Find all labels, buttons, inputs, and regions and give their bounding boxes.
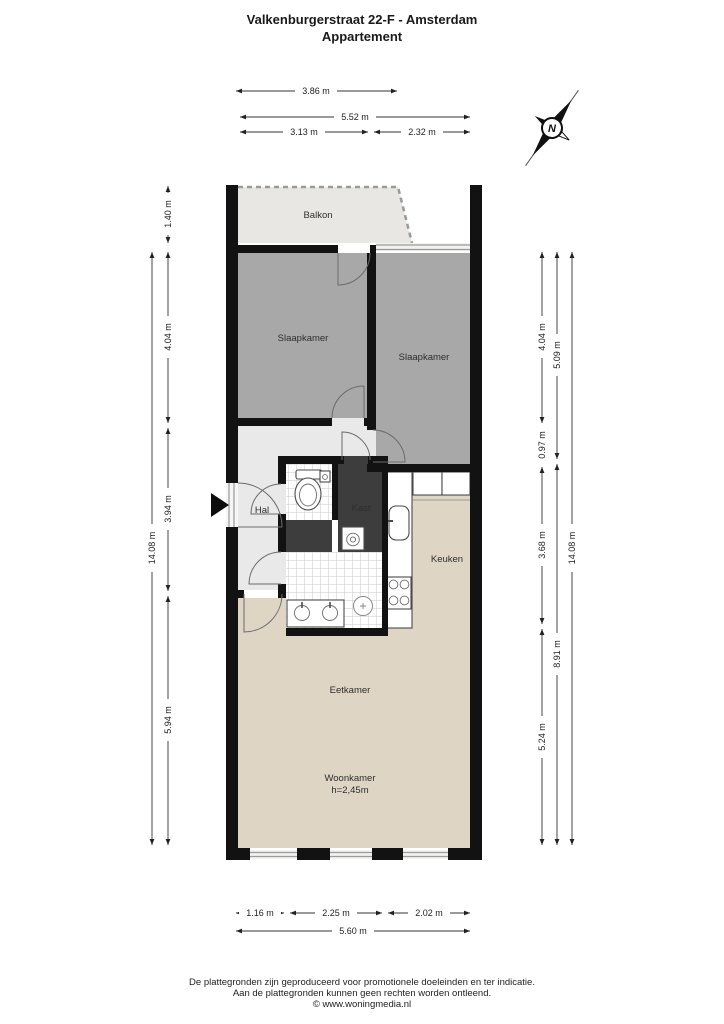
- footer-copyright: © www.woningmedia.nl: [0, 999, 724, 1010]
- wall-top-jamb: [370, 245, 376, 253]
- wall-left-upper: [226, 185, 238, 483]
- label-woonkamer-height: h=2,45m: [331, 785, 368, 796]
- dimensions-right: 4.04 m 0.97 m 3.68 m: [537, 252, 578, 845]
- label-keuken: Keuken: [431, 554, 463, 565]
- dim-right-upper-section: 5.09 m: [552, 252, 563, 459]
- wall-bath-bottom: [286, 628, 388, 636]
- wc-hand-basin: [320, 471, 330, 482]
- dim-left-bedroom-depth: 4.04 m: [163, 252, 174, 423]
- dim-right-vestibule-depth: 0.97 m: [537, 424, 548, 466]
- label-slaapkamer-1: Slaapkamer: [278, 333, 329, 344]
- window-living-3: [403, 850, 448, 859]
- svg-text:3.94 m: 3.94 m: [163, 495, 173, 523]
- svg-text:1.40 m: 1.40 m: [163, 200, 173, 228]
- compass-icon: N: [508, 78, 595, 177]
- label-balkon: Balkon: [303, 210, 332, 221]
- dimensions-bottom: 1.16 m 2.25 m 2.02 m 5.60 m: [236, 908, 470, 937]
- window-bedroom2: [376, 243, 470, 251]
- label-eetkamer: Eetkamer: [330, 685, 371, 696]
- wall-vestibule-bottom: [286, 456, 344, 464]
- washing-machine: [342, 527, 364, 550]
- wall-left-lower: [226, 527, 238, 860]
- wall-bedroom1-bottom: [238, 418, 332, 426]
- dim-right-living-depth: 5.24 m: [537, 629, 548, 845]
- dim-window3-width: 2.02 m: [388, 908, 470, 919]
- wall-hall-wc-1: [278, 456, 286, 484]
- wall-bedroom-divider: [367, 253, 376, 430]
- kitchen-sink: [389, 506, 409, 540]
- svg-text:14.08 m: 14.08 m: [147, 532, 157, 565]
- svg-text:14.08 m: 14.08 m: [567, 532, 577, 565]
- wall-right: [470, 185, 482, 860]
- dim-right-bedroom-depth: 4.04 m: [537, 252, 548, 423]
- wall-wc-closet-divider: [332, 464, 338, 520]
- duct-block: [286, 520, 332, 552]
- dim-balcony-width: 3.86 m: [236, 86, 397, 97]
- floorplan-drawing: Balkon Slaapkamer Slaapkamer Hal Kast Ke…: [0, 0, 724, 1024]
- svg-text:3.68 m: 3.68 m: [537, 531, 547, 559]
- dim-right-lower-section: 8.91 m: [552, 464, 563, 845]
- wall-hall-wc-2: [278, 514, 286, 552]
- dim-balcony-depth: 1.40 m: [163, 186, 174, 243]
- wall-top-bedroom1: [226, 245, 338, 253]
- closet-fixtures: [342, 527, 364, 550]
- dim-right-kitchen-depth: 3.68 m: [537, 467, 548, 624]
- svg-text:2.32 m: 2.32 m: [408, 127, 436, 137]
- wall-bottom-1: [226, 848, 250, 860]
- footer-disclaimer: De plattegronden zijn geproduceerd voor …: [0, 977, 724, 1011]
- toilet-bowl: [295, 478, 321, 510]
- svg-text:2.02 m: 2.02 m: [415, 908, 443, 918]
- dim-left-total-depth: 14.08 m: [147, 252, 158, 845]
- footer-line-1: De plattegronden zijn geproduceerd voor …: [0, 977, 724, 988]
- svg-text:4.04 m: 4.04 m: [163, 323, 173, 351]
- compass-north-label: N: [548, 123, 557, 135]
- label-hal: Hal: [255, 505, 269, 516]
- kitchen-cabinet: [442, 472, 470, 495]
- dim-left-hall-depth: 3.94 m: [163, 428, 174, 591]
- svg-text:5.09 m: 5.09 m: [552, 341, 562, 369]
- dim-top-total-width: 5.52 m: [240, 112, 470, 123]
- svg-text:5.60 m: 5.60 m: [339, 926, 367, 936]
- wall-hall-bottom-left: [238, 590, 244, 598]
- dimensions-top: 3.86 m 5.52 m 3.13 m 2.32 m: [236, 86, 470, 138]
- floorplan-page: Valkenburgerstraat 22-F - Amsterdam Appa…: [0, 0, 724, 1024]
- svg-text:3.86 m: 3.86 m: [302, 86, 330, 96]
- label-kast: Kast: [351, 503, 370, 514]
- dim-left-living-depth: 5.94 m: [163, 596, 174, 845]
- svg-text:3.13 m: 3.13 m: [290, 127, 318, 137]
- svg-text:5.24 m: 5.24 m: [537, 723, 547, 751]
- svg-text:0.97 m: 0.97 m: [537, 431, 547, 459]
- svg-text:5.52 m: 5.52 m: [341, 112, 369, 122]
- window-living-2: [330, 850, 372, 859]
- svg-text:8.91 m: 8.91 m: [552, 640, 562, 668]
- label-woonkamer: Woonkamer: [324, 773, 375, 784]
- svg-text:2.25 m: 2.25 m: [322, 908, 350, 918]
- bathroom-counter: [287, 600, 344, 627]
- svg-text:4.04 m: 4.04 m: [537, 323, 547, 351]
- kitchen-cabinet: [413, 472, 442, 495]
- label-slaapkamer-2: Slaapkamer: [399, 352, 450, 363]
- svg-text:5.94 m: 5.94 m: [163, 706, 173, 734]
- wall-bath-kitchen: [382, 456, 388, 628]
- dim-window2-width: 2.25 m: [290, 908, 382, 919]
- dim-window1-width: 1.16 m: [236, 908, 284, 919]
- window-living-1: [250, 850, 297, 859]
- wall-bedroom1-bottom-jamb: [364, 418, 367, 426]
- wall-bottom-3: [372, 848, 403, 860]
- dim-right-total-depth: 14.08 m: [567, 252, 578, 845]
- dim-bedroom2-width: 2.32 m: [374, 127, 470, 138]
- dimensions-left: 1.40 m 4.04 m 3.94 m: [147, 186, 174, 845]
- wall-bottom-2: [297, 848, 330, 860]
- dim-bottom-total-width: 5.60 m: [236, 926, 470, 937]
- wall-bottom-4: [448, 848, 482, 860]
- dim-bedroom1-width: 3.13 m: [240, 127, 368, 138]
- footer-line-2: Aan de plattegronden kunnen geen rechten…: [0, 988, 724, 999]
- svg-text:1.16 m: 1.16 m: [246, 908, 274, 918]
- wall-hall-bottom-right: [282, 590, 286, 598]
